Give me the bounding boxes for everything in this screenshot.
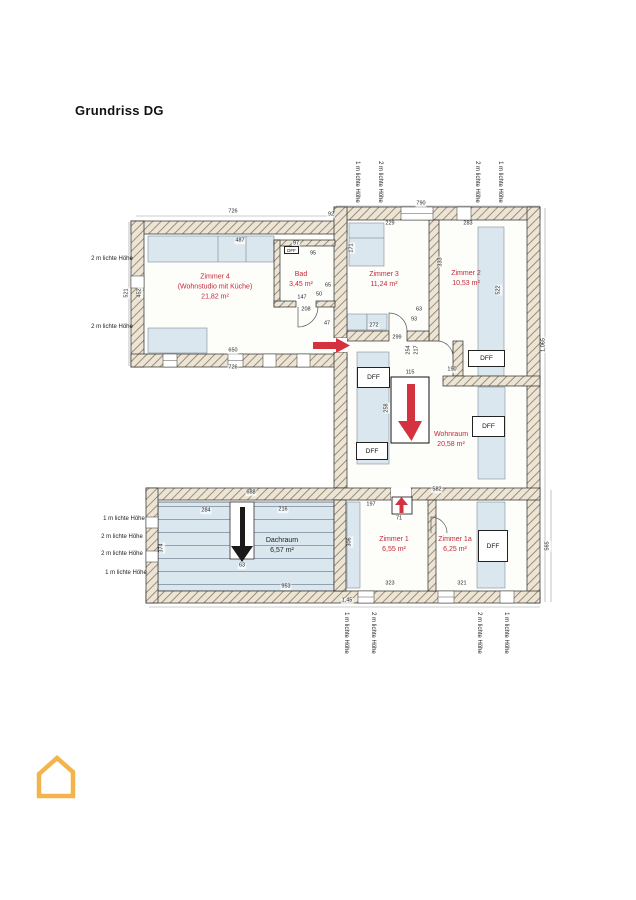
- attic-ladder: [230, 502, 254, 562]
- staircase-wohnraum: [391, 377, 429, 443]
- floor-plan-page: Grundriss DG: [0, 0, 636, 900]
- stairs-up-box: [392, 497, 412, 514]
- floor-plan-drawing: [0, 0, 636, 900]
- house-logo-icon: [30, 753, 82, 805]
